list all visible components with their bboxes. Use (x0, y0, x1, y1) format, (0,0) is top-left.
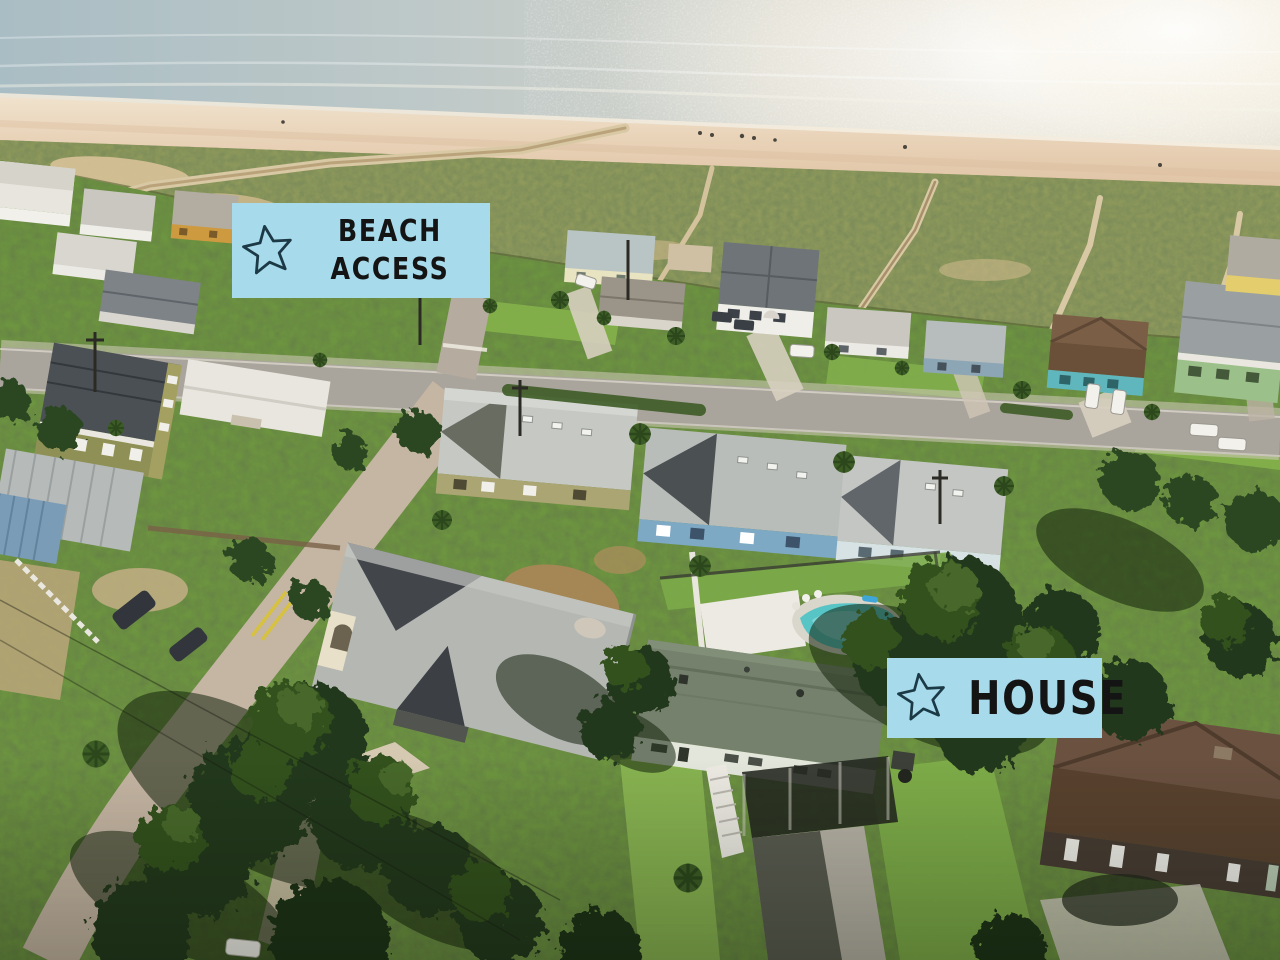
teal-house (1047, 314, 1149, 396)
aerial-photo (0, 0, 1280, 960)
blue-house (637, 427, 846, 558)
star-outline-icon (897, 672, 947, 724)
aerial-photo-stage: BEACH ACCESS HOUSE (0, 0, 1280, 960)
vignette (0, 760, 1280, 960)
beach-access-text: BEACH ACCESS (314, 213, 465, 289)
beach-access-label: BEACH ACCESS (232, 203, 490, 298)
house-label: HOUSE (887, 658, 1102, 738)
green-tall-house (1174, 281, 1280, 403)
house-text: HOUSE (968, 671, 1127, 725)
star-outline-icon (242, 224, 294, 278)
white-two-story-house (716, 242, 819, 338)
beach-access-road (456, 296, 472, 376)
